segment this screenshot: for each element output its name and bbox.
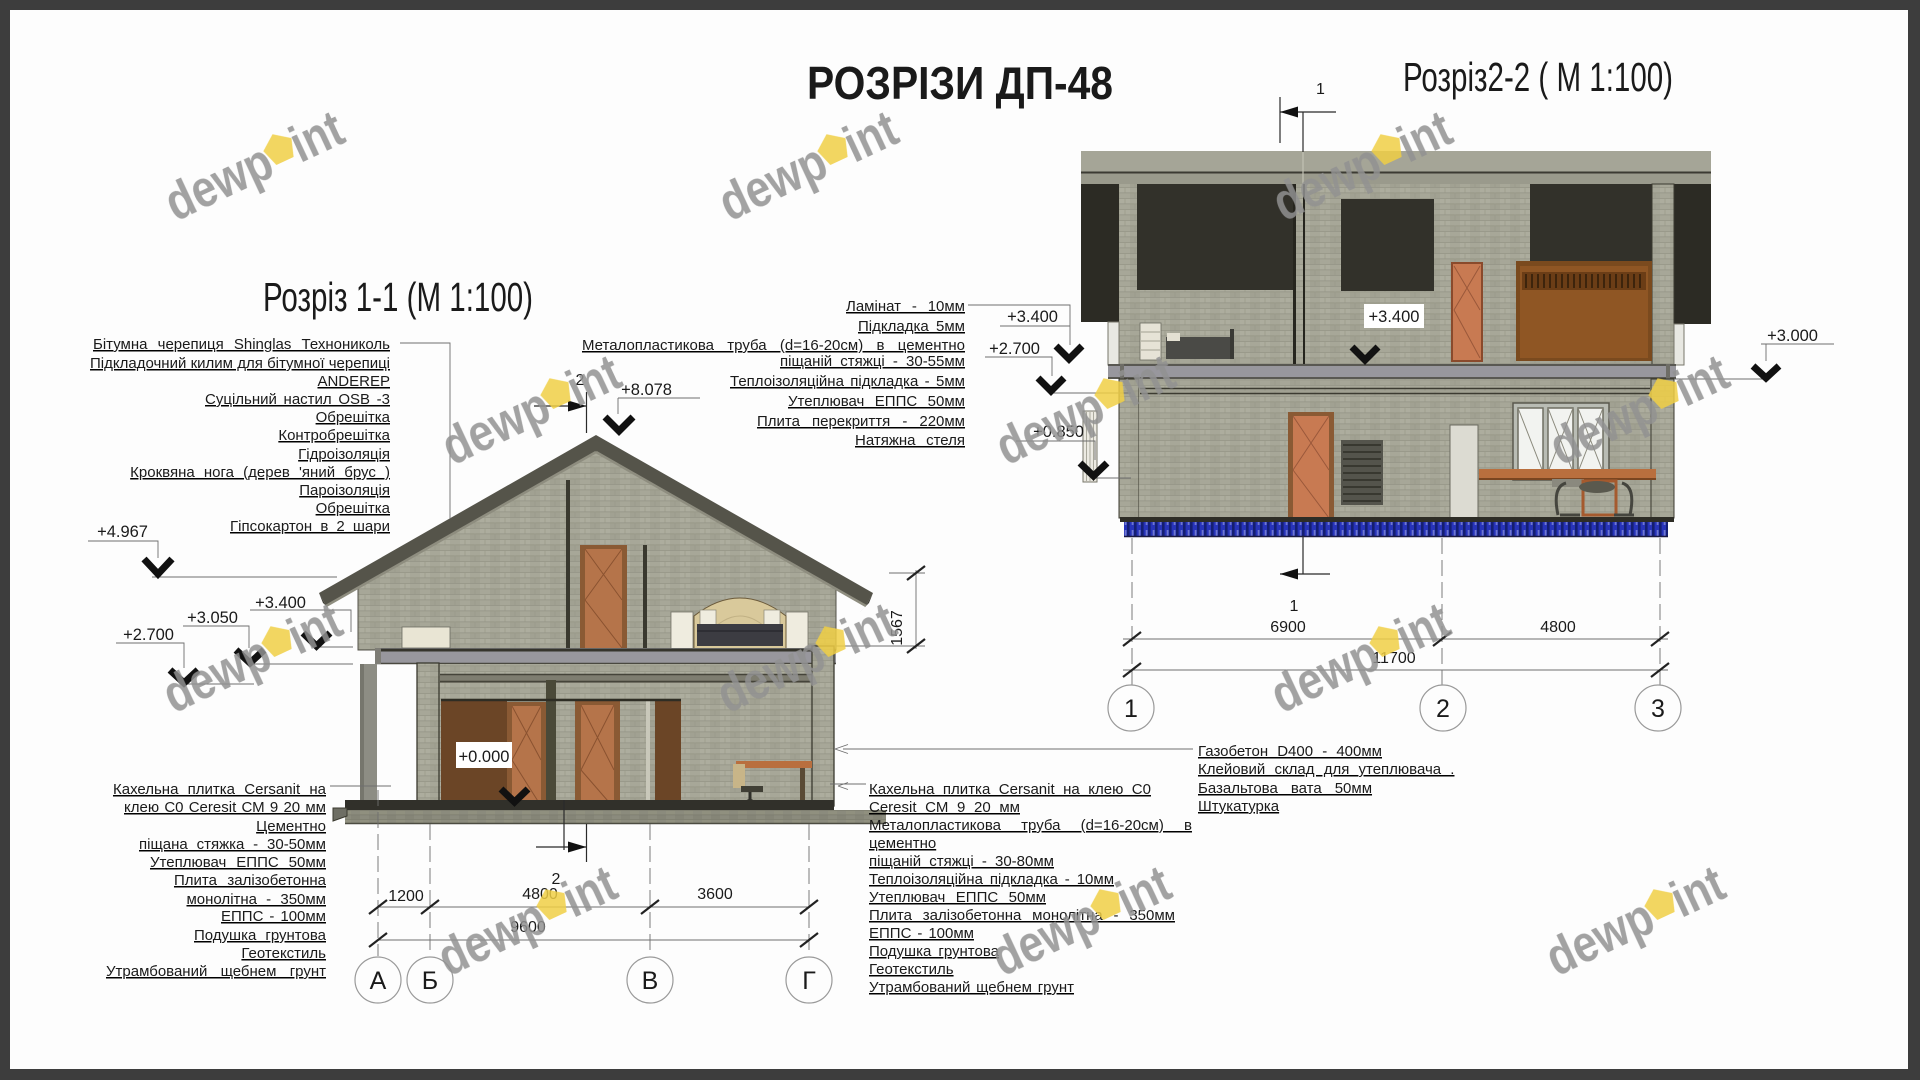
svg-text:Утеплювач ЕППС 50мм: Утеплювач ЕППС 50мм (788, 393, 965, 410)
svg-text:+3.400: +3.400 (1369, 308, 1420, 326)
svg-text:Гідроізоляція: Гідроізоляція (298, 446, 390, 463)
svg-text:піщаній стяжці - 30-55мм: піщаній стяжці - 30-55мм (780, 353, 965, 370)
svg-text:Гіпсокартон в 2 шари: Гіпсокартон в 2 шари (230, 518, 390, 535)
svg-text:Металопластикова труба (d=16-2: Металопластикова труба (d=16-20см) в цем… (582, 337, 965, 354)
svg-text:Подушка грунтова: Подушка грунтова (869, 943, 1000, 960)
svg-text:В: В (642, 967, 659, 995)
svg-text:Металопластикова труба (d=16-2: Металопластикова труба (d=16-20см) в (869, 817, 1192, 834)
svg-text:+0.000: +0.000 (459, 748, 510, 766)
svg-text:піщаній стяжці - 30-80мм: піщаній стяжці - 30-80мм (869, 853, 1054, 870)
svg-text:ЕППС - 100мм: ЕППС - 100мм (221, 908, 326, 925)
svg-text:Утеплювач ЕППС 50мм: Утеплювач ЕППС 50мм (869, 889, 1046, 906)
svg-text:Плита перекриття - 220мм: Плита перекриття - 220мм (757, 413, 965, 430)
svg-text:Геотекстиль: Геотекстиль (869, 961, 954, 978)
svg-text:ANDEREP: ANDEREP (317, 373, 390, 390)
svg-text:2: 2 (1436, 695, 1450, 723)
svg-text:Ceresit СМ 9 20 мм: Ceresit СМ 9 20 мм (869, 799, 1020, 816)
svg-text:ЕППС - 100мм: ЕППС - 100мм (869, 925, 974, 942)
svg-text:Бітумна черепиця Shinglas Техн: Бітумна черепиця Shinglas Технониколь (93, 336, 390, 353)
svg-text:клею С0 Ceresit СМ 9 20 мм: клею С0 Ceresit СМ 9 20 мм (124, 799, 326, 816)
svg-text:Б: Б (422, 967, 438, 995)
svg-text:Штукатурка: Штукатурка (1198, 798, 1280, 815)
svg-text:Цементно: Цементно (256, 818, 326, 835)
svg-text:+4.967: +4.967 (97, 523, 148, 541)
svg-text:1: 1 (1290, 598, 1299, 615)
svg-text:1: 1 (1124, 695, 1138, 723)
svg-text:1: 1 (1316, 81, 1325, 98)
svg-text:Пароізоляція: Пароізоляція (299, 482, 390, 499)
svg-text:Контробрешітка: Контробрешітка (278, 427, 390, 444)
svg-text:+2.700: +2.700 (989, 340, 1040, 358)
svg-text:піщана стяжка - 30-50мм: піщана стяжка - 30-50мм (139, 836, 326, 853)
svg-text:Розріз2-2 ( М 1:100): Розріз2-2 ( М 1:100) (1403, 54, 1673, 100)
svg-text:Підкладочний килим для бітумно: Підкладочний килим для бітумної черепиці (90, 355, 390, 372)
svg-text:+3.000: +3.000 (1767, 327, 1818, 345)
svg-text:Розріз 1-1 (М 1:100): Розріз 1-1 (М 1:100) (263, 274, 533, 320)
svg-text:Обрешітка: Обрешітка (316, 500, 391, 517)
svg-text:Утеплювач ЕППС 50мм: Утеплювач ЕППС 50мм (150, 854, 326, 871)
svg-text:Плита залізобетонна: Плита залізобетонна (174, 872, 327, 889)
svg-text:3: 3 (1651, 695, 1665, 723)
svg-text:+3.400: +3.400 (1007, 308, 1058, 326)
svg-text:Клейовий склад для утеплювача: Клейовий склад для утеплювача . (1198, 761, 1454, 778)
svg-text:Утрамбований щебнем грунт: Утрамбований щебнем грунт (869, 979, 1074, 996)
svg-text:Газобетон D400 - 400мм: Газобетон D400 - 400мм (1198, 743, 1382, 760)
svg-text:1200: 1200 (388, 888, 424, 905)
svg-text:Базальтова вата 50мм: Базальтова вата 50мм (1198, 780, 1372, 797)
svg-text:Натяжна стеля: Натяжна стеля (855, 432, 965, 449)
svg-text:Обрешітка: Обрешітка (316, 409, 391, 426)
svg-text:Утрамбований щебнем грунт: Утрамбований щебнем грунт (106, 963, 326, 980)
svg-text:монолітна - 350мм: монолітна - 350мм (186, 891, 326, 908)
svg-text:Кахельна плитка Cersanit на: Кахельна плитка Cersanit на (113, 781, 327, 798)
svg-text:Підкладка 5мм: Підкладка 5мм (858, 318, 965, 335)
svg-text:цементно: цементно (869, 835, 936, 852)
svg-text:+2.700: +2.700 (123, 626, 174, 644)
svg-text:4800: 4800 (1540, 619, 1576, 636)
svg-text:3600: 3600 (697, 886, 733, 903)
svg-text:Теплоізоляційна підкладка - 5м: Теплоізоляційна підкладка - 5мм (730, 373, 965, 390)
svg-text:Г: Г (802, 967, 816, 995)
svg-text:6900: 6900 (1270, 619, 1306, 636)
svg-text:Кроквяна нога (дерев 'яний бру: Кроквяна нога (дерев 'яний брус ) (130, 464, 390, 481)
svg-text:Теплоізоляційна підкладка - 10: Теплоізоляційна підкладка - 10мм (869, 871, 1114, 888)
svg-text:+3.050: +3.050 (187, 609, 238, 627)
svg-text:Ламінат - 10мм: Ламінат - 10мм (846, 298, 965, 315)
svg-text:Геотекстиль: Геотекстиль (241, 945, 326, 962)
svg-text:РОЗРІЗИ ДП-48: РОЗРІЗИ ДП-48 (807, 57, 1113, 109)
svg-text:А: А (370, 967, 387, 995)
svg-text:Кахельна плитка Cersanit на кл: Кахельна плитка Cersanit на клею С0 (869, 781, 1151, 798)
svg-text:Суцільний настил OSB -3: Суцільний настил OSB -3 (205, 391, 390, 408)
svg-text:Подушка грунтова: Подушка грунтова (194, 927, 327, 944)
